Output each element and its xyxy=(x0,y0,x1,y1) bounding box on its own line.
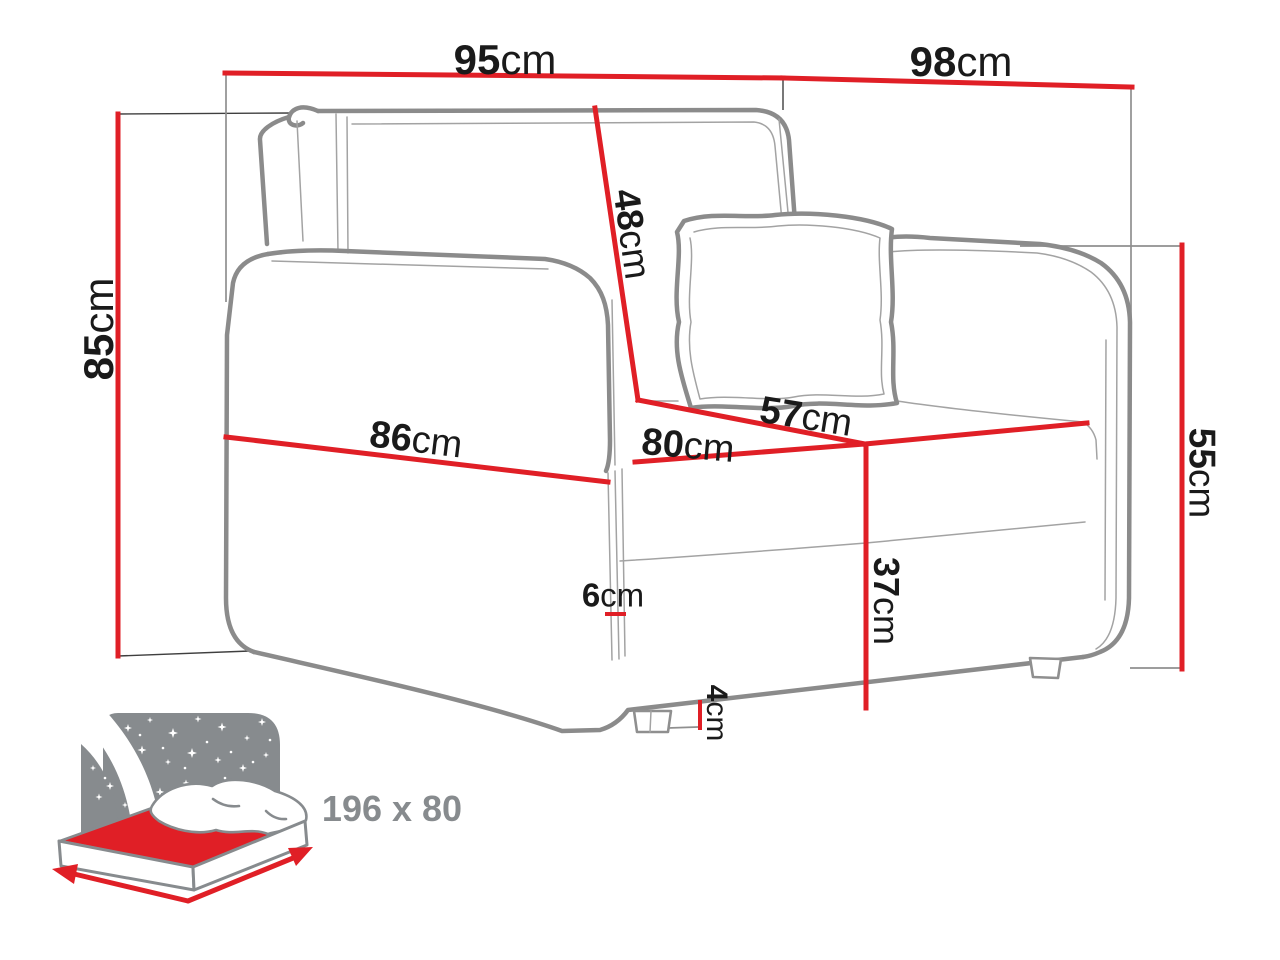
dim-unit: cm xyxy=(1182,469,1223,518)
dim-unit: cm xyxy=(956,38,1012,85)
dim-unit: cm xyxy=(611,227,658,282)
dim-value: 98 xyxy=(910,38,957,85)
dim-label-seat-width: 80cm xyxy=(640,423,736,469)
dim-value: 85 xyxy=(75,334,122,381)
dim-value: 80 xyxy=(640,421,686,467)
dim-unit: cm xyxy=(700,701,733,741)
dim-unit: cm xyxy=(409,419,464,467)
pillow xyxy=(677,214,897,408)
dim-unit: cm xyxy=(600,577,644,614)
dim-label-armrest-thickness: 6cm xyxy=(582,579,644,612)
dim-value: 57 xyxy=(757,389,805,437)
dim-label-leg-height: 4cm xyxy=(701,685,731,742)
dim-value: 48 xyxy=(605,186,651,232)
diagram-canvas: 95cm 98cm 85cm 48cm 57cm 80cm 86cm 37cm … xyxy=(0,0,1280,960)
dim-label-overall-width: 95cm xyxy=(454,39,557,81)
dim-label-overall-height: 85cm xyxy=(78,278,120,381)
dim-unit: cm xyxy=(500,36,556,83)
dim-label-seat-height: 37cm xyxy=(868,557,904,645)
dim-unit: cm xyxy=(682,425,736,471)
dimension-lines xyxy=(118,73,1182,728)
dim-value: 37 xyxy=(866,557,907,597)
dim-unit: cm xyxy=(75,278,122,334)
dim-value: 55 xyxy=(1182,428,1223,469)
dim-value: 95 xyxy=(454,36,501,83)
dim-value: 6 xyxy=(582,577,600,614)
dim-value: 4 xyxy=(700,685,733,702)
sleeping-function-icon xyxy=(52,705,313,901)
dim-unit: cm xyxy=(866,597,907,645)
armchair-sketch xyxy=(226,107,1130,732)
dim-label-armrest-height: 55cm xyxy=(1184,428,1221,518)
dim-label-overall-depth: 98cm xyxy=(910,41,1013,83)
dim-value: 86 xyxy=(367,413,414,460)
sofa-line-art xyxy=(0,0,1280,960)
dim-unit: cm xyxy=(799,396,856,445)
sleeping-area-label: 196 x 80 xyxy=(322,791,462,827)
